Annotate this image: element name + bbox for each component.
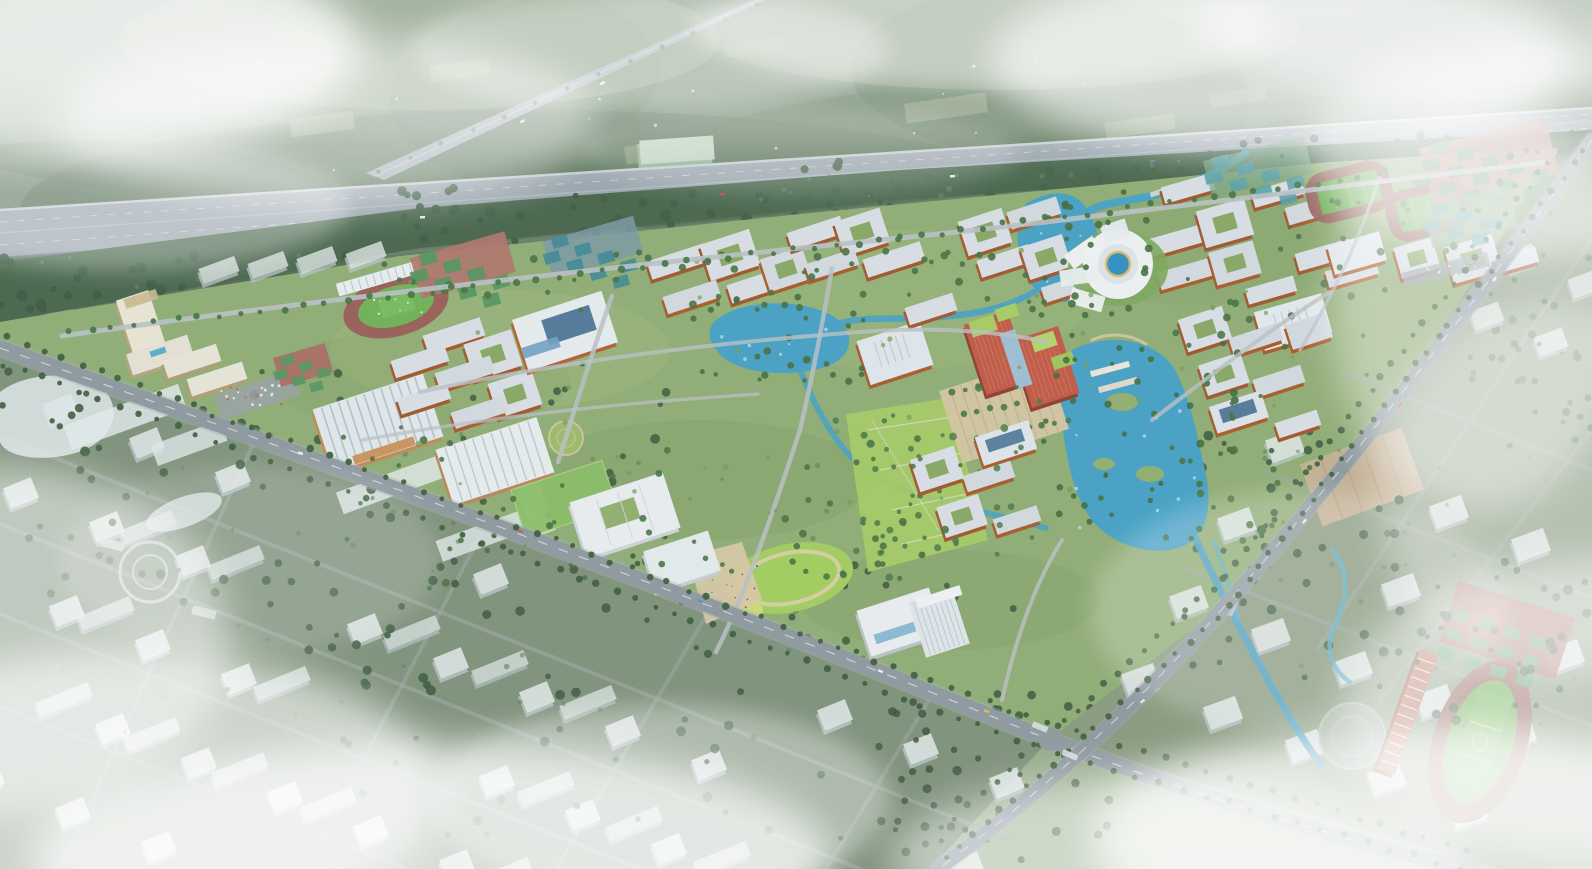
cloud [60, 465, 440, 655]
campus-render-canvas [0, 0, 1592, 869]
layer-fog [0, 0, 1592, 869]
cloud [580, 105, 1020, 195]
campus-aerial-rendering [0, 0, 1592, 869]
scene-layers [0, 0, 1592, 869]
